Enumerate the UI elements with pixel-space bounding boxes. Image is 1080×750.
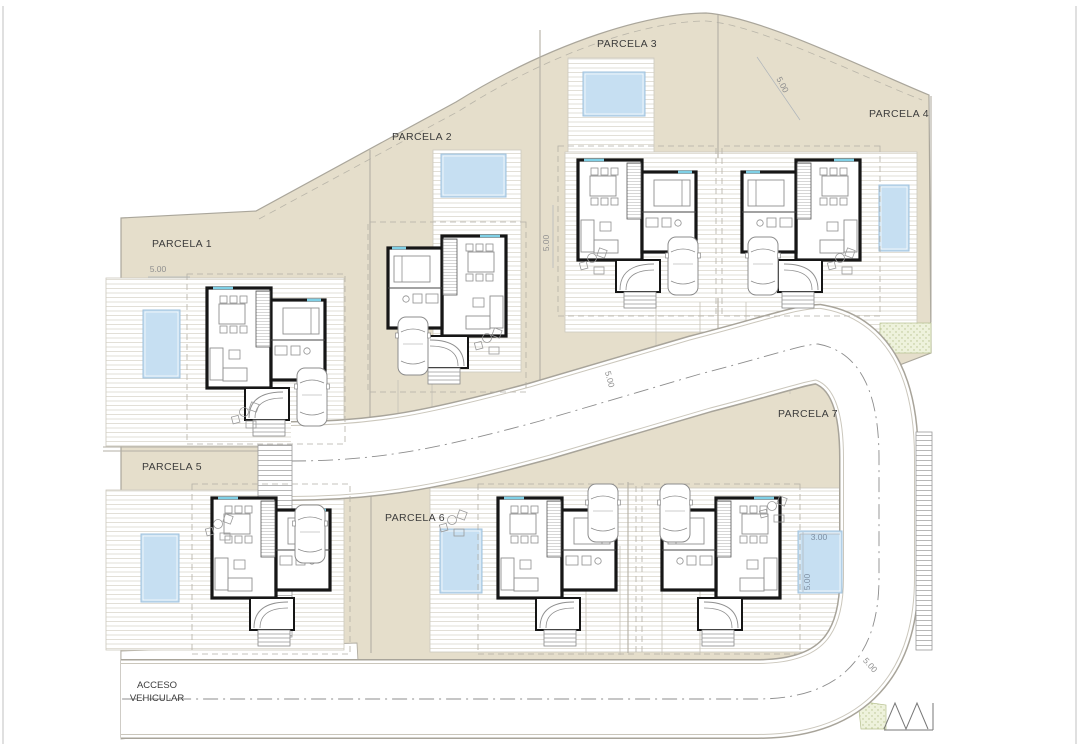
parcel-label: PARCELA 1 [152,238,212,250]
parcel-label: PARCELA 7 [778,408,838,420]
car-icon [396,317,431,375]
car-icon [746,237,781,295]
parcel-label: PARCELA 3 [597,38,657,50]
dimension-label: 3.00 [811,532,828,542]
car-icon [666,237,701,295]
site-plan-drawing: PARCELA 1PARCELA 2PARCELA 3PARCELA 4PARC… [0,0,1080,750]
fence [884,703,933,730]
access-label-line: VEHICULAR [130,693,185,704]
swimming-pool [440,529,482,593]
deck-area [430,488,850,652]
car-icon [295,368,330,426]
dimension-label: 5.00 [150,264,167,274]
swimming-pool [583,72,645,116]
car-icon [586,484,621,542]
swimming-pool [141,534,179,602]
dimension-label: 5.00 [541,234,551,251]
car-icon [293,505,328,563]
access-label-line: ACCESO [137,680,177,691]
site-plan-page: PARCELA 1PARCELA 2PARCELA 3PARCELA 4PARC… [0,0,1080,750]
parcel-label: PARCELA 2 [392,131,452,143]
parcel-label: PARCELA 6 [385,512,445,524]
fence-zigzag [884,703,928,729]
parcel-label: PARCELA 5 [142,461,202,473]
car-icon [658,484,693,542]
dimension-label: 5.00 [802,573,812,590]
stair-strip [916,432,932,650]
swimming-pool [143,310,180,378]
swimming-pool [879,185,909,251]
parcel-label: PARCELA 4 [869,108,929,120]
swimming-pool [441,154,506,197]
